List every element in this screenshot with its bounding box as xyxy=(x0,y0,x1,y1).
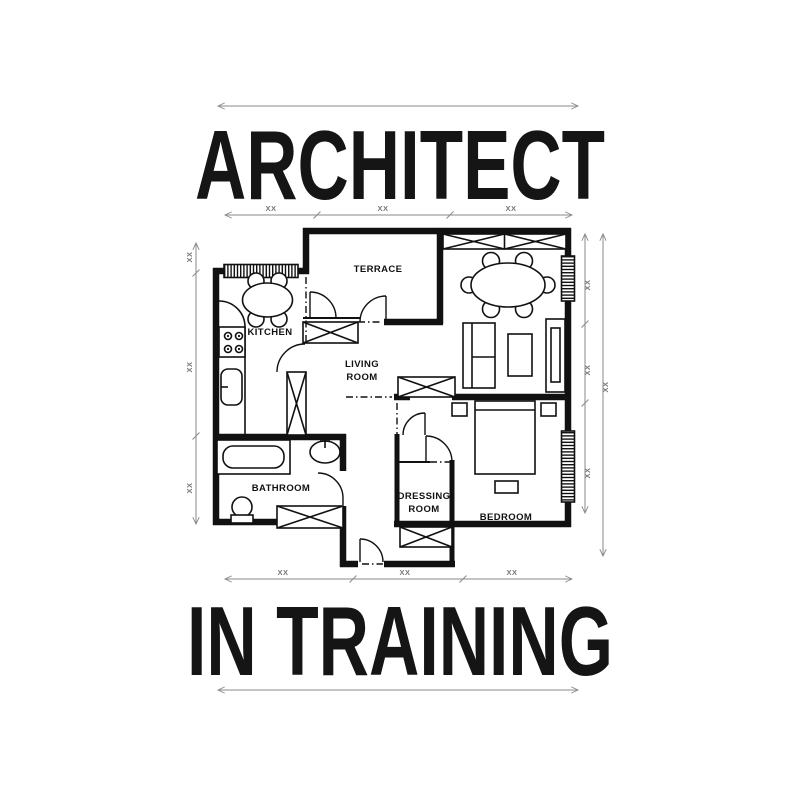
sofa xyxy=(463,323,495,388)
dim-label: XX xyxy=(506,568,517,577)
dim-label: XX xyxy=(185,251,194,262)
room-label-dressing-line2: ROOM xyxy=(408,504,439,515)
title-bottom: IN TRAINING xyxy=(187,586,613,696)
dim-label: XX xyxy=(583,279,592,290)
room-label-living-line1: LIVING xyxy=(345,359,379,370)
bed xyxy=(475,401,535,474)
nightstand-right xyxy=(541,403,556,416)
dim-label: XX xyxy=(265,204,276,213)
window-bathroom xyxy=(277,506,343,528)
bathtub xyxy=(217,440,290,474)
window-bedroom-right xyxy=(562,431,575,502)
toilet xyxy=(231,497,253,523)
tv-unit xyxy=(546,319,565,392)
window-living-top xyxy=(443,234,566,249)
dim-label: XX xyxy=(399,568,410,577)
dim-label: XX xyxy=(185,361,194,372)
dim-label: XX xyxy=(377,204,388,213)
architect-poster: ARCHITECT IN TRAINING XX XX XX XX XX XX xyxy=(0,0,800,800)
title-top: ARCHITECT xyxy=(195,110,605,220)
room-label-terrace: TERRACE xyxy=(354,264,403,275)
closet-kitchen-living xyxy=(287,372,306,435)
room-label-bedroom: BEDROOM xyxy=(480,512,532,523)
closet-living-bedroom-wall xyxy=(398,377,455,397)
closet-terrace-wall xyxy=(303,322,358,343)
room-label-living-line2: ROOM xyxy=(346,372,377,383)
dim-label: XX xyxy=(583,364,592,375)
dim-label: XX xyxy=(185,482,194,493)
nightstand-left xyxy=(452,403,467,416)
bedroom-bench xyxy=(495,481,518,493)
dim-label: XX xyxy=(277,568,288,577)
room-label-kitchen: KITCHEN xyxy=(247,327,292,338)
dim-label: XX xyxy=(601,381,610,392)
dim-label: XX xyxy=(583,467,592,478)
coffee-table xyxy=(508,334,532,376)
window-living-right xyxy=(562,256,575,301)
room-label-bathroom: BATHROOM xyxy=(252,483,310,494)
dim-label: XX xyxy=(505,204,516,213)
room-label-dressing-line1: DRESSING xyxy=(398,491,451,502)
closet-dressing-bottom xyxy=(400,527,452,547)
